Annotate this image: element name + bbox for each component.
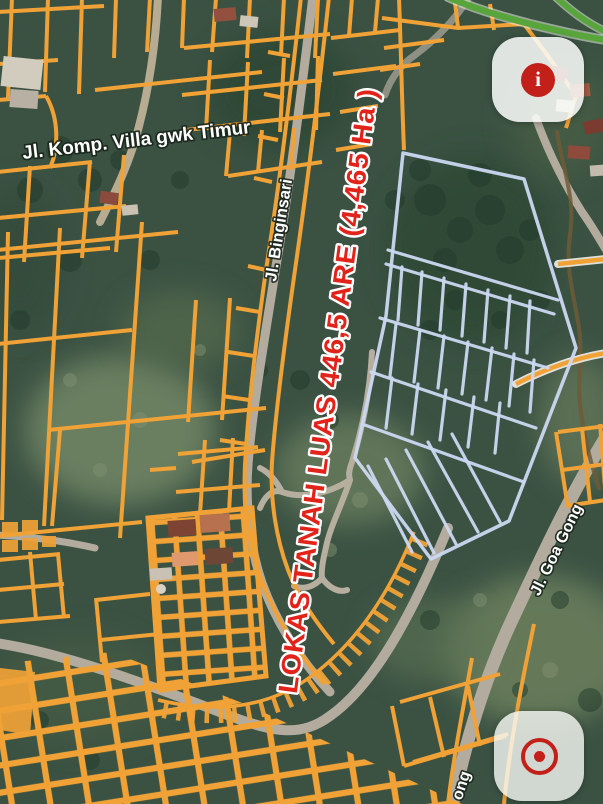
info-button[interactable]: i (492, 37, 584, 122)
info-glyph: i (535, 69, 541, 90)
housing-complex (148, 508, 266, 690)
target-dot (534, 751, 545, 762)
info-icon: i (521, 63, 555, 97)
map-viewport: Jl. Komp. Villa gwk Timur Jl. Binginsari… (0, 0, 603, 804)
target-icon (521, 738, 558, 775)
locate-button[interactable] (494, 711, 584, 801)
